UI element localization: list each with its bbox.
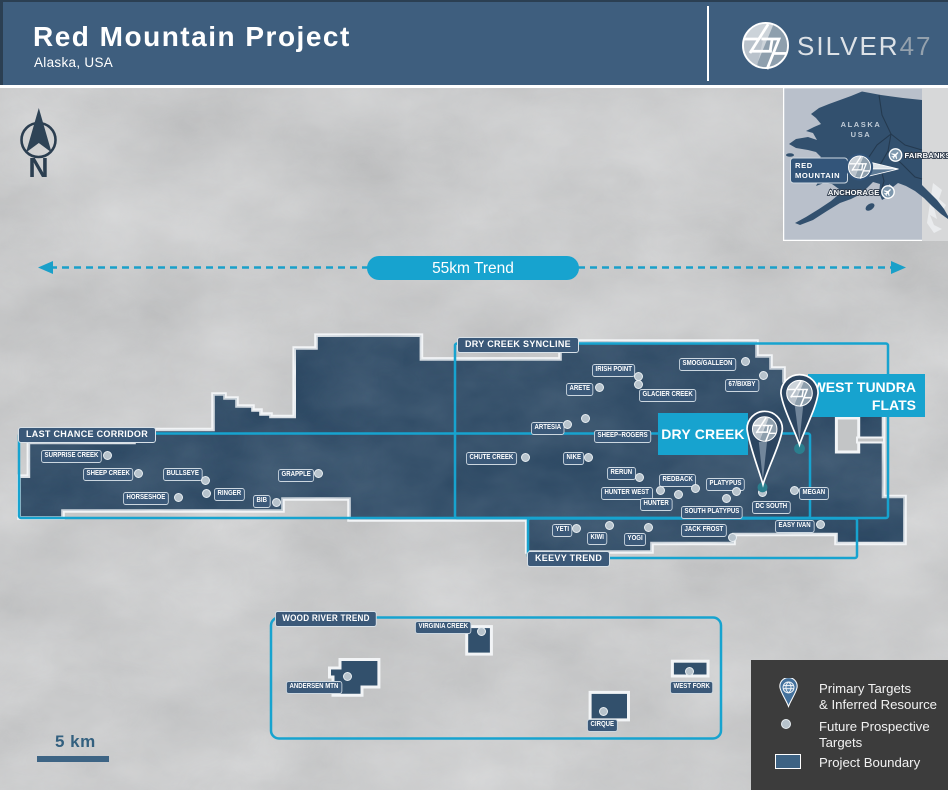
svg-text:N: N xyxy=(28,152,48,181)
svg-text:USA: USA xyxy=(851,130,872,139)
svg-text:ALASKA: ALASKA xyxy=(841,120,882,129)
svg-text:RED: RED xyxy=(795,161,813,170)
svg-text:FAIRBANKS: FAIRBANKS xyxy=(905,151,948,160)
svg-text:ANCHORAGE: ANCHORAGE xyxy=(828,188,880,197)
svg-text:MOUNTAIN: MOUNTAIN xyxy=(795,171,840,180)
svg-text:55km Trend: 55km Trend xyxy=(432,260,514,277)
